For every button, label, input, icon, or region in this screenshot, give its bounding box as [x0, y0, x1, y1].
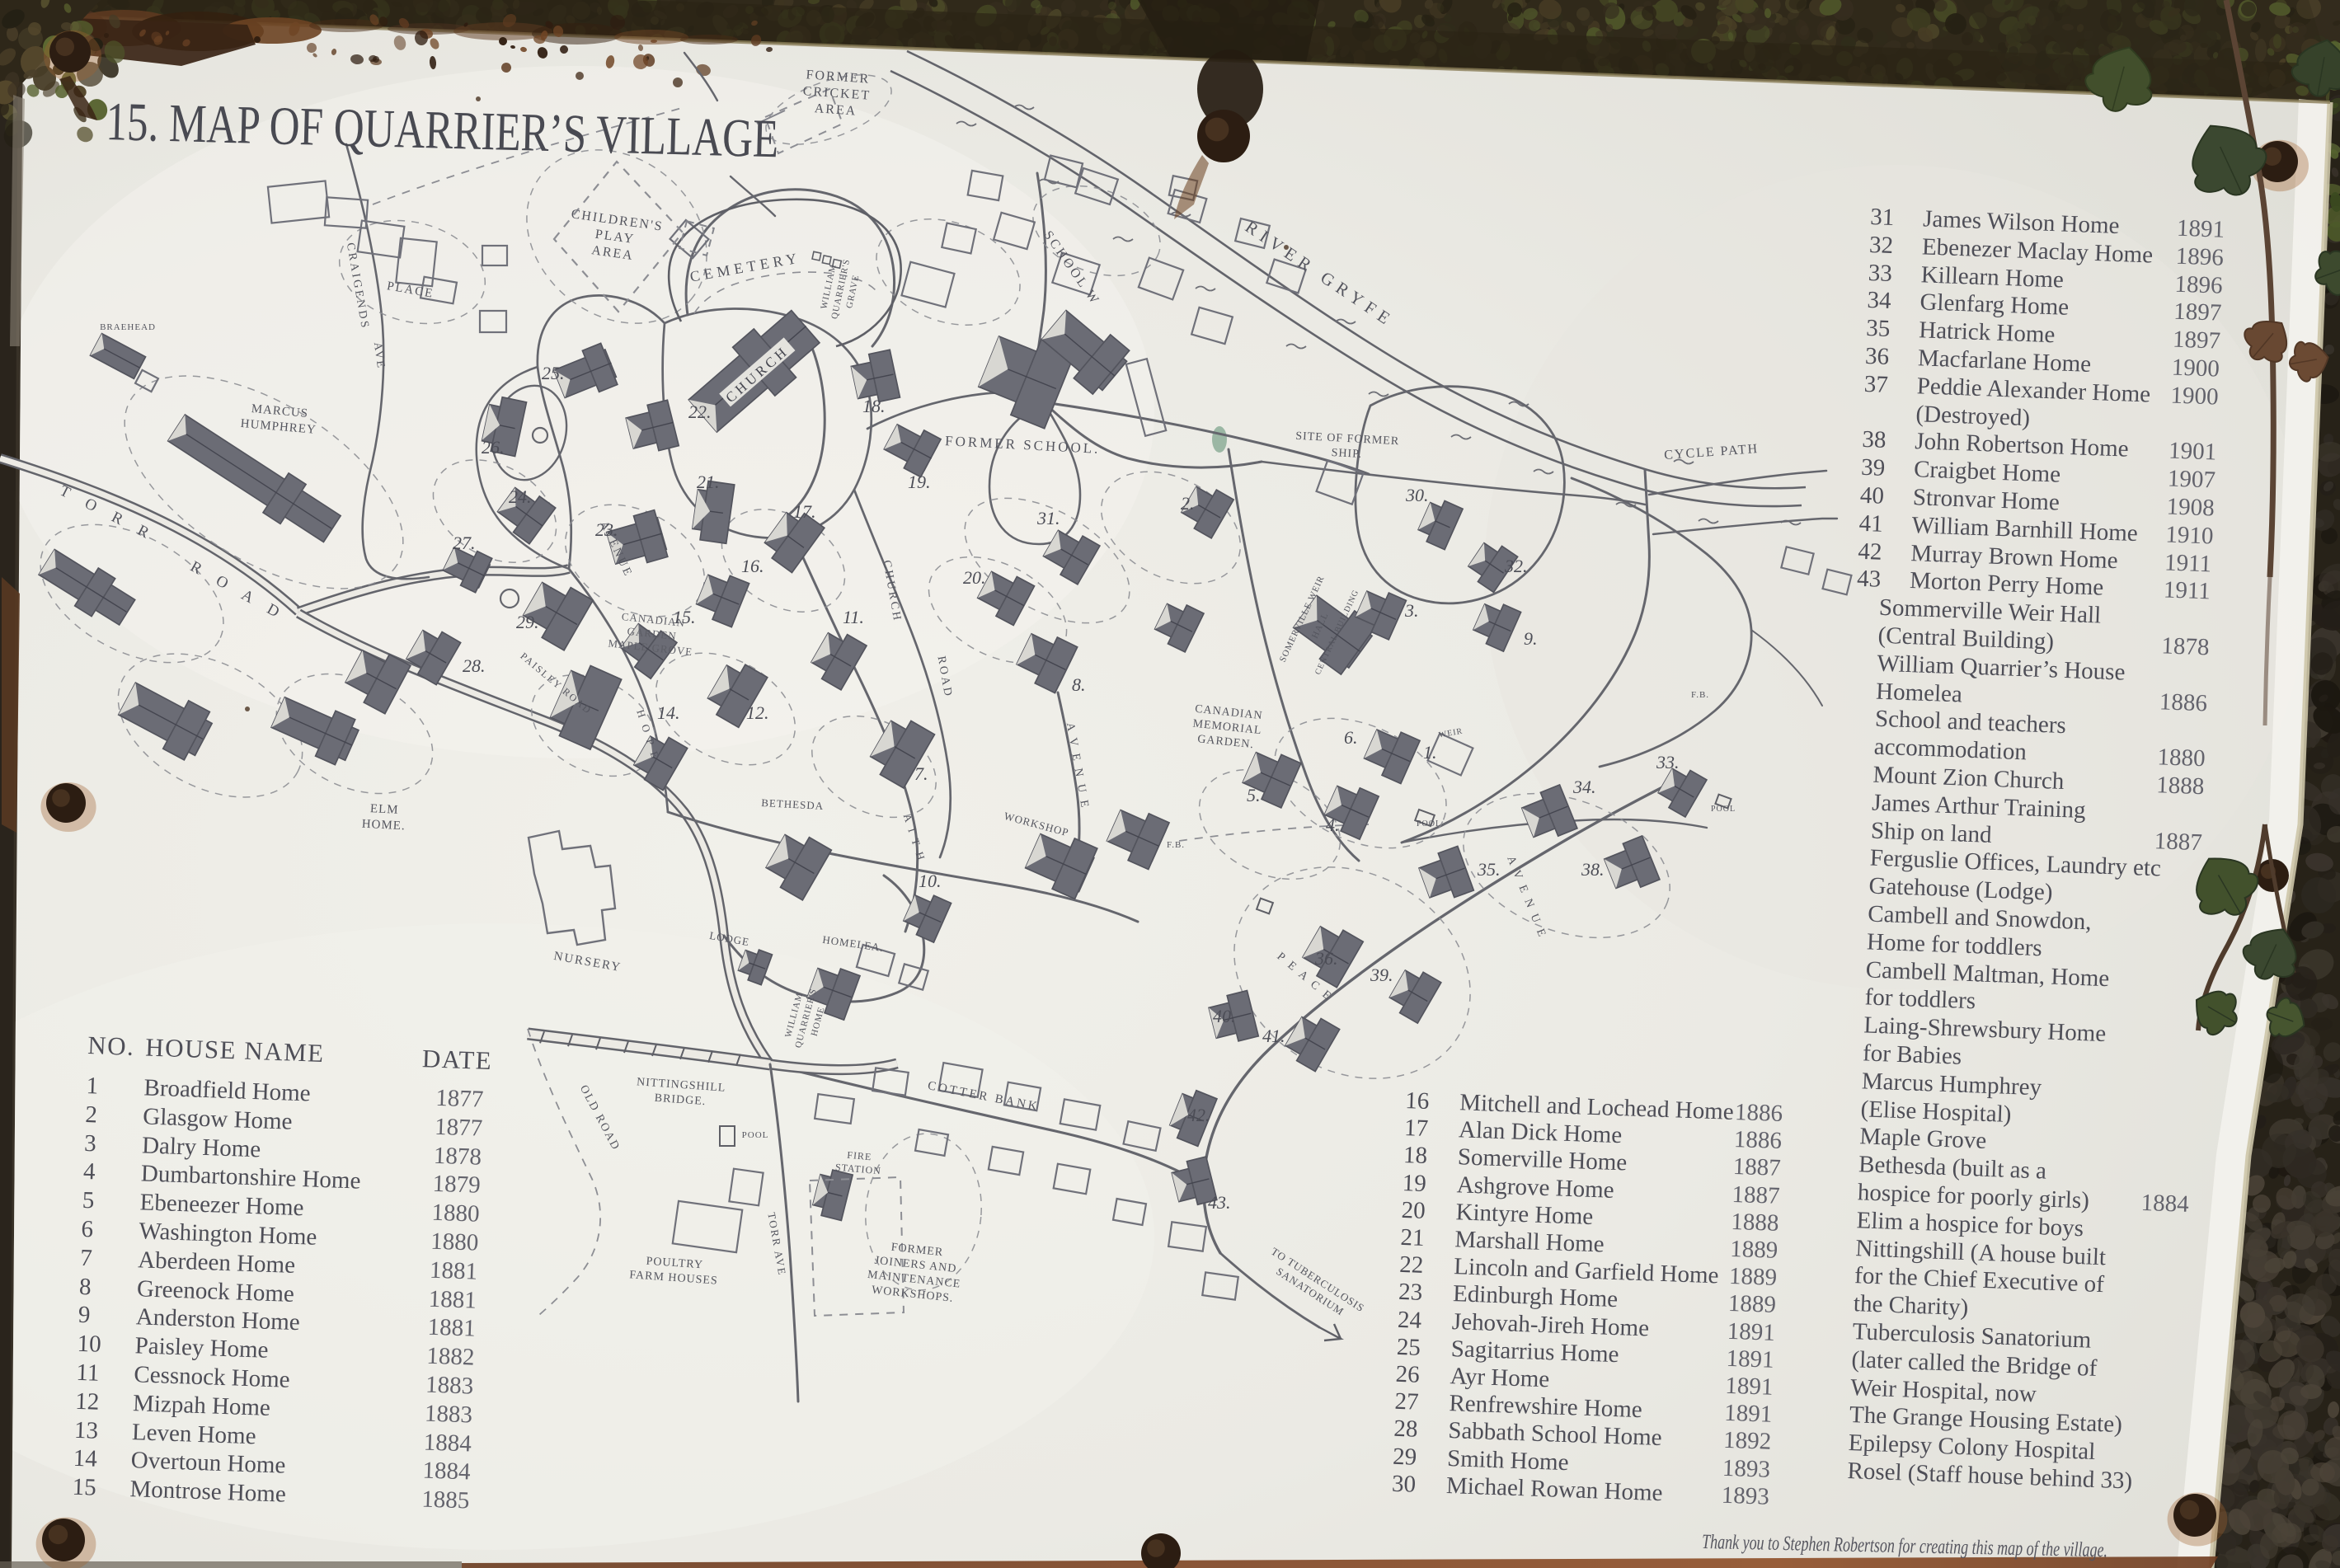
svg-text:34: 34	[1867, 287, 1892, 314]
svg-text:32.: 32.	[1504, 556, 1528, 576]
svg-text:SHIP.: SHIP.	[1331, 447, 1362, 461]
svg-text:1883: 1883	[424, 1401, 472, 1429]
svg-text:1893: 1893	[1721, 1482, 1769, 1510]
svg-text:Maple Grove: Maple Grove	[1859, 1123, 1987, 1154]
svg-text:31.: 31.	[1036, 508, 1060, 528]
svg-text:POOL: POOL	[1711, 805, 1736, 814]
svg-text:4.: 4.	[1326, 815, 1340, 835]
svg-text:Glasgow Home: Glasgow Home	[143, 1103, 293, 1134]
svg-text:1911: 1911	[2164, 549, 2212, 577]
svg-text:28.: 28.	[463, 655, 486, 676]
svg-text:1897: 1897	[2173, 298, 2222, 326]
svg-text:Ayr Home: Ayr Home	[1450, 1363, 1550, 1392]
svg-text:Overtoun Home: Overtoun Home	[130, 1447, 286, 1479]
svg-text:15.: 15.	[673, 607, 696, 627]
svg-text:29: 29	[1393, 1444, 1417, 1471]
svg-text:36: 36	[1865, 343, 1890, 370]
svg-text:Aberdeen Home: Aberdeen Home	[138, 1246, 296, 1279]
svg-text:Cessnock Home: Cessnock Home	[134, 1361, 290, 1393]
svg-text:1889: 1889	[1729, 1263, 1778, 1291]
svg-text:3: 3	[84, 1130, 97, 1157]
svg-text:8.: 8.	[1072, 674, 1086, 695]
svg-text:38.: 38.	[1581, 859, 1605, 880]
svg-text:1891: 1891	[1724, 1400, 1773, 1428]
svg-text:1881: 1881	[430, 1257, 478, 1285]
svg-text:1880: 1880	[431, 1199, 480, 1228]
svg-text:1892: 1892	[1723, 1427, 1772, 1455]
svg-text:1889: 1889	[1727, 1290, 1776, 1318]
svg-text:5: 5	[82, 1187, 95, 1214]
svg-text:Montrose Home: Montrose Home	[129, 1476, 286, 1508]
svg-text:1882: 1882	[426, 1343, 475, 1371]
svg-text:1889: 1889	[1730, 1236, 1778, 1264]
svg-text:36.: 36.	[1314, 948, 1338, 969]
svg-text:1900: 1900	[2171, 354, 2220, 383]
svg-text:1877: 1877	[435, 1114, 483, 1142]
svg-text:26.: 26.	[482, 437, 505, 458]
svg-text:1908: 1908	[2166, 493, 2215, 521]
svg-text:17.: 17.	[793, 501, 816, 522]
svg-text:16.: 16.	[741, 556, 764, 576]
svg-text:18: 18	[1403, 1142, 1427, 1169]
svg-text:22: 22	[1399, 1251, 1424, 1279]
svg-text:17: 17	[1404, 1115, 1429, 1142]
svg-text:13: 13	[73, 1417, 98, 1444]
svg-text:1879: 1879	[432, 1171, 481, 1199]
svg-text:3.: 3.	[1404, 600, 1419, 621]
svg-text:29.: 29.	[516, 612, 539, 632]
svg-text:1.: 1.	[1423, 742, 1437, 763]
svg-text:1880: 1880	[430, 1228, 479, 1256]
svg-text:1888: 1888	[2156, 772, 2205, 800]
svg-text:1886: 1886	[1735, 1099, 1783, 1127]
svg-text:14.: 14.	[657, 702, 680, 723]
svg-text:41.: 41.	[1262, 1026, 1285, 1046]
svg-text:HOME.: HOME.	[361, 818, 406, 833]
svg-text:Dalry Home: Dalry Home	[142, 1132, 261, 1162]
svg-text:40.: 40.	[1213, 1006, 1236, 1026]
svg-text:33: 33	[1868, 260, 1892, 287]
svg-text:15: 15	[72, 1474, 96, 1501]
svg-text:28: 28	[1393, 1415, 1418, 1443]
svg-text:4: 4	[82, 1158, 96, 1185]
svg-text:Hatrick Home: Hatrick Home	[1919, 317, 2056, 348]
svg-text:1893: 1893	[1722, 1455, 1770, 1483]
svg-text:POOL: POOL	[742, 1130, 769, 1140]
svg-text:for Babies: for Babies	[1863, 1040, 1962, 1069]
svg-text:21: 21	[1400, 1224, 1425, 1251]
svg-text:1880: 1880	[2157, 744, 2206, 772]
svg-text:Leven Home: Leven Home	[131, 1419, 256, 1449]
svg-text:9.: 9.	[1524, 628, 1538, 649]
svg-text:Homelea: Homelea	[1876, 678, 1963, 708]
svg-text:1887: 1887	[1732, 1181, 1780, 1209]
svg-text:1881: 1881	[428, 1286, 477, 1314]
svg-text:30.: 30.	[1405, 485, 1429, 505]
svg-text:6.: 6.	[1344, 727, 1358, 748]
svg-text:35.: 35.	[1477, 859, 1501, 880]
svg-text:1907: 1907	[2167, 465, 2215, 493]
svg-text:42.: 42.	[1187, 1105, 1210, 1125]
svg-text:41: 41	[1858, 510, 1883, 538]
svg-text:40: 40	[1859, 482, 1884, 509]
svg-text:8: 8	[79, 1274, 92, 1300]
svg-text:Glenfarg Home: Glenfarg Home	[1919, 289, 2070, 321]
svg-text:14: 14	[73, 1445, 98, 1472]
svg-text:2.: 2.	[1181, 493, 1195, 514]
svg-text:1891: 1891	[1727, 1318, 1775, 1346]
svg-text:BRAEHEAD: BRAEHEAD	[100, 322, 156, 332]
svg-text:1888: 1888	[1731, 1209, 1779, 1237]
svg-text:1: 1	[86, 1073, 99, 1099]
svg-text:1881: 1881	[427, 1314, 476, 1342]
svg-text:1884: 1884	[423, 1430, 472, 1458]
svg-text:F.B.: F.B.	[1167, 840, 1185, 850]
svg-text:ELM: ELM	[369, 802, 398, 817]
svg-text:16: 16	[1405, 1087, 1430, 1115]
svg-text:23.: 23.	[595, 519, 618, 540]
svg-text:1887: 1887	[1732, 1153, 1781, 1181]
svg-text:DATE: DATE	[421, 1044, 492, 1075]
svg-text:Kintyre Home: Kintyre Home	[1455, 1199, 1594, 1230]
svg-text:the Charity): the Charity)	[1853, 1290, 1968, 1321]
svg-text:12: 12	[75, 1388, 100, 1415]
svg-text:Smith Home: Smith Home	[1447, 1445, 1569, 1476]
svg-text:1910: 1910	[2165, 521, 2214, 549]
svg-text:1891: 1891	[2176, 215, 2225, 243]
svg-text:11.: 11.	[843, 607, 864, 627]
svg-text:(Destroyed): (Destroyed)	[1915, 401, 2031, 431]
svg-text:Greenock Home: Greenock Home	[137, 1275, 295, 1307]
svg-text:1896: 1896	[2175, 243, 2224, 271]
svg-text:(Elise Hospital): (Elise Hospital)	[1860, 1096, 2012, 1128]
svg-text:22.: 22.	[688, 401, 712, 422]
svg-text:1878: 1878	[433, 1143, 482, 1171]
svg-text:25.: 25.	[542, 363, 565, 383]
svg-text:1886: 1886	[2159, 688, 2207, 716]
svg-text:35: 35	[1866, 315, 1891, 342]
svg-text:10.: 10.	[919, 871, 942, 891]
svg-text:12.: 12.	[746, 702, 769, 723]
svg-text:33.: 33.	[1656, 752, 1680, 772]
svg-text:1884: 1884	[422, 1458, 472, 1486]
svg-text:1897: 1897	[2173, 326, 2221, 354]
svg-text:F.B.: F.B.	[1691, 690, 1709, 700]
svg-text:1901: 1901	[2168, 437, 2217, 465]
svg-text:26: 26	[1395, 1361, 1420, 1388]
svg-text:30: 30	[1392, 1471, 1417, 1498]
svg-text:FIRE: FIRE	[847, 1149, 872, 1163]
svg-text:1896: 1896	[2174, 271, 2223, 299]
svg-text:39: 39	[1861, 454, 1886, 481]
svg-text:27: 27	[1394, 1388, 1419, 1415]
svg-text:1885: 1885	[421, 1486, 470, 1514]
svg-text:7: 7	[80, 1245, 93, 1271]
svg-text:25: 25	[1396, 1334, 1421, 1361]
svg-text:43.: 43.	[1208, 1192, 1231, 1213]
svg-text:2: 2	[85, 1101, 98, 1128]
svg-text:1887: 1887	[2154, 828, 2202, 856]
svg-text:31: 31	[1870, 204, 1895, 231]
svg-text:24: 24	[1397, 1307, 1422, 1334]
svg-text:Killearn Home: Killearn Home	[1920, 261, 2064, 293]
svg-text:6: 6	[81, 1216, 94, 1242]
svg-text:10: 10	[77, 1331, 101, 1358]
svg-text:Mizpah Home: Mizpah Home	[133, 1390, 271, 1421]
svg-text:42: 42	[1858, 538, 1882, 566]
svg-text:39.: 39.	[1370, 965, 1393, 985]
svg-text:11: 11	[76, 1359, 100, 1387]
svg-text:1911: 1911	[2163, 576, 2211, 604]
svg-text:32: 32	[1868, 232, 1893, 259]
svg-text:37: 37	[1863, 371, 1888, 398]
svg-text:1884: 1884	[2140, 1190, 2190, 1218]
svg-text:43: 43	[1857, 566, 1882, 593]
svg-text:1900: 1900	[2170, 383, 2219, 411]
svg-text:23: 23	[1398, 1279, 1423, 1306]
svg-text:POOL: POOL	[1417, 819, 1441, 829]
svg-text:24.: 24.	[509, 486, 532, 507]
svg-text:34.: 34.	[1572, 777, 1596, 797]
svg-text:18.: 18.	[862, 396, 886, 416]
svg-text:1883: 1883	[425, 1372, 474, 1400]
svg-text:Paisley Home: Paisley Home	[134, 1332, 269, 1364]
svg-text:5.: 5.	[1247, 785, 1261, 805]
svg-text:20: 20	[1401, 1197, 1426, 1224]
svg-text:1878: 1878	[2161, 632, 2210, 660]
svg-text:27.: 27.	[453, 533, 476, 553]
svg-text:Stronvar Home: Stronvar Home	[1912, 484, 2060, 516]
svg-text:for toddlers: for toddlers	[1864, 984, 1976, 1014]
svg-text:1886: 1886	[1733, 1126, 1782, 1154]
svg-text:Ship on land: Ship on land	[1870, 818, 1992, 848]
svg-text:1891: 1891	[1725, 1373, 1774, 1401]
svg-text:7.: 7.	[914, 763, 928, 784]
svg-text:1877: 1877	[435, 1085, 484, 1113]
svg-text:accommodation: accommodation	[1873, 734, 2028, 766]
svg-text:38: 38	[1862, 426, 1887, 453]
svg-text:Craigbet Home: Craigbet Home	[1914, 456, 2061, 488]
svg-text:1891: 1891	[1726, 1345, 1774, 1373]
svg-text:AREA: AREA	[814, 101, 858, 119]
svg-text:Marshall Home: Marshall Home	[1454, 1226, 1605, 1257]
svg-text:19: 19	[1402, 1170, 1426, 1197]
svg-text:NO.: NO.	[87, 1030, 135, 1061]
svg-text:Ashgrove Home: Ashgrove Home	[1456, 1171, 1614, 1204]
svg-text:9: 9	[78, 1302, 91, 1328]
svg-text:21.: 21.	[697, 472, 720, 492]
svg-text:20.: 20.	[963, 567, 986, 588]
svg-text:19.: 19.	[908, 472, 931, 492]
